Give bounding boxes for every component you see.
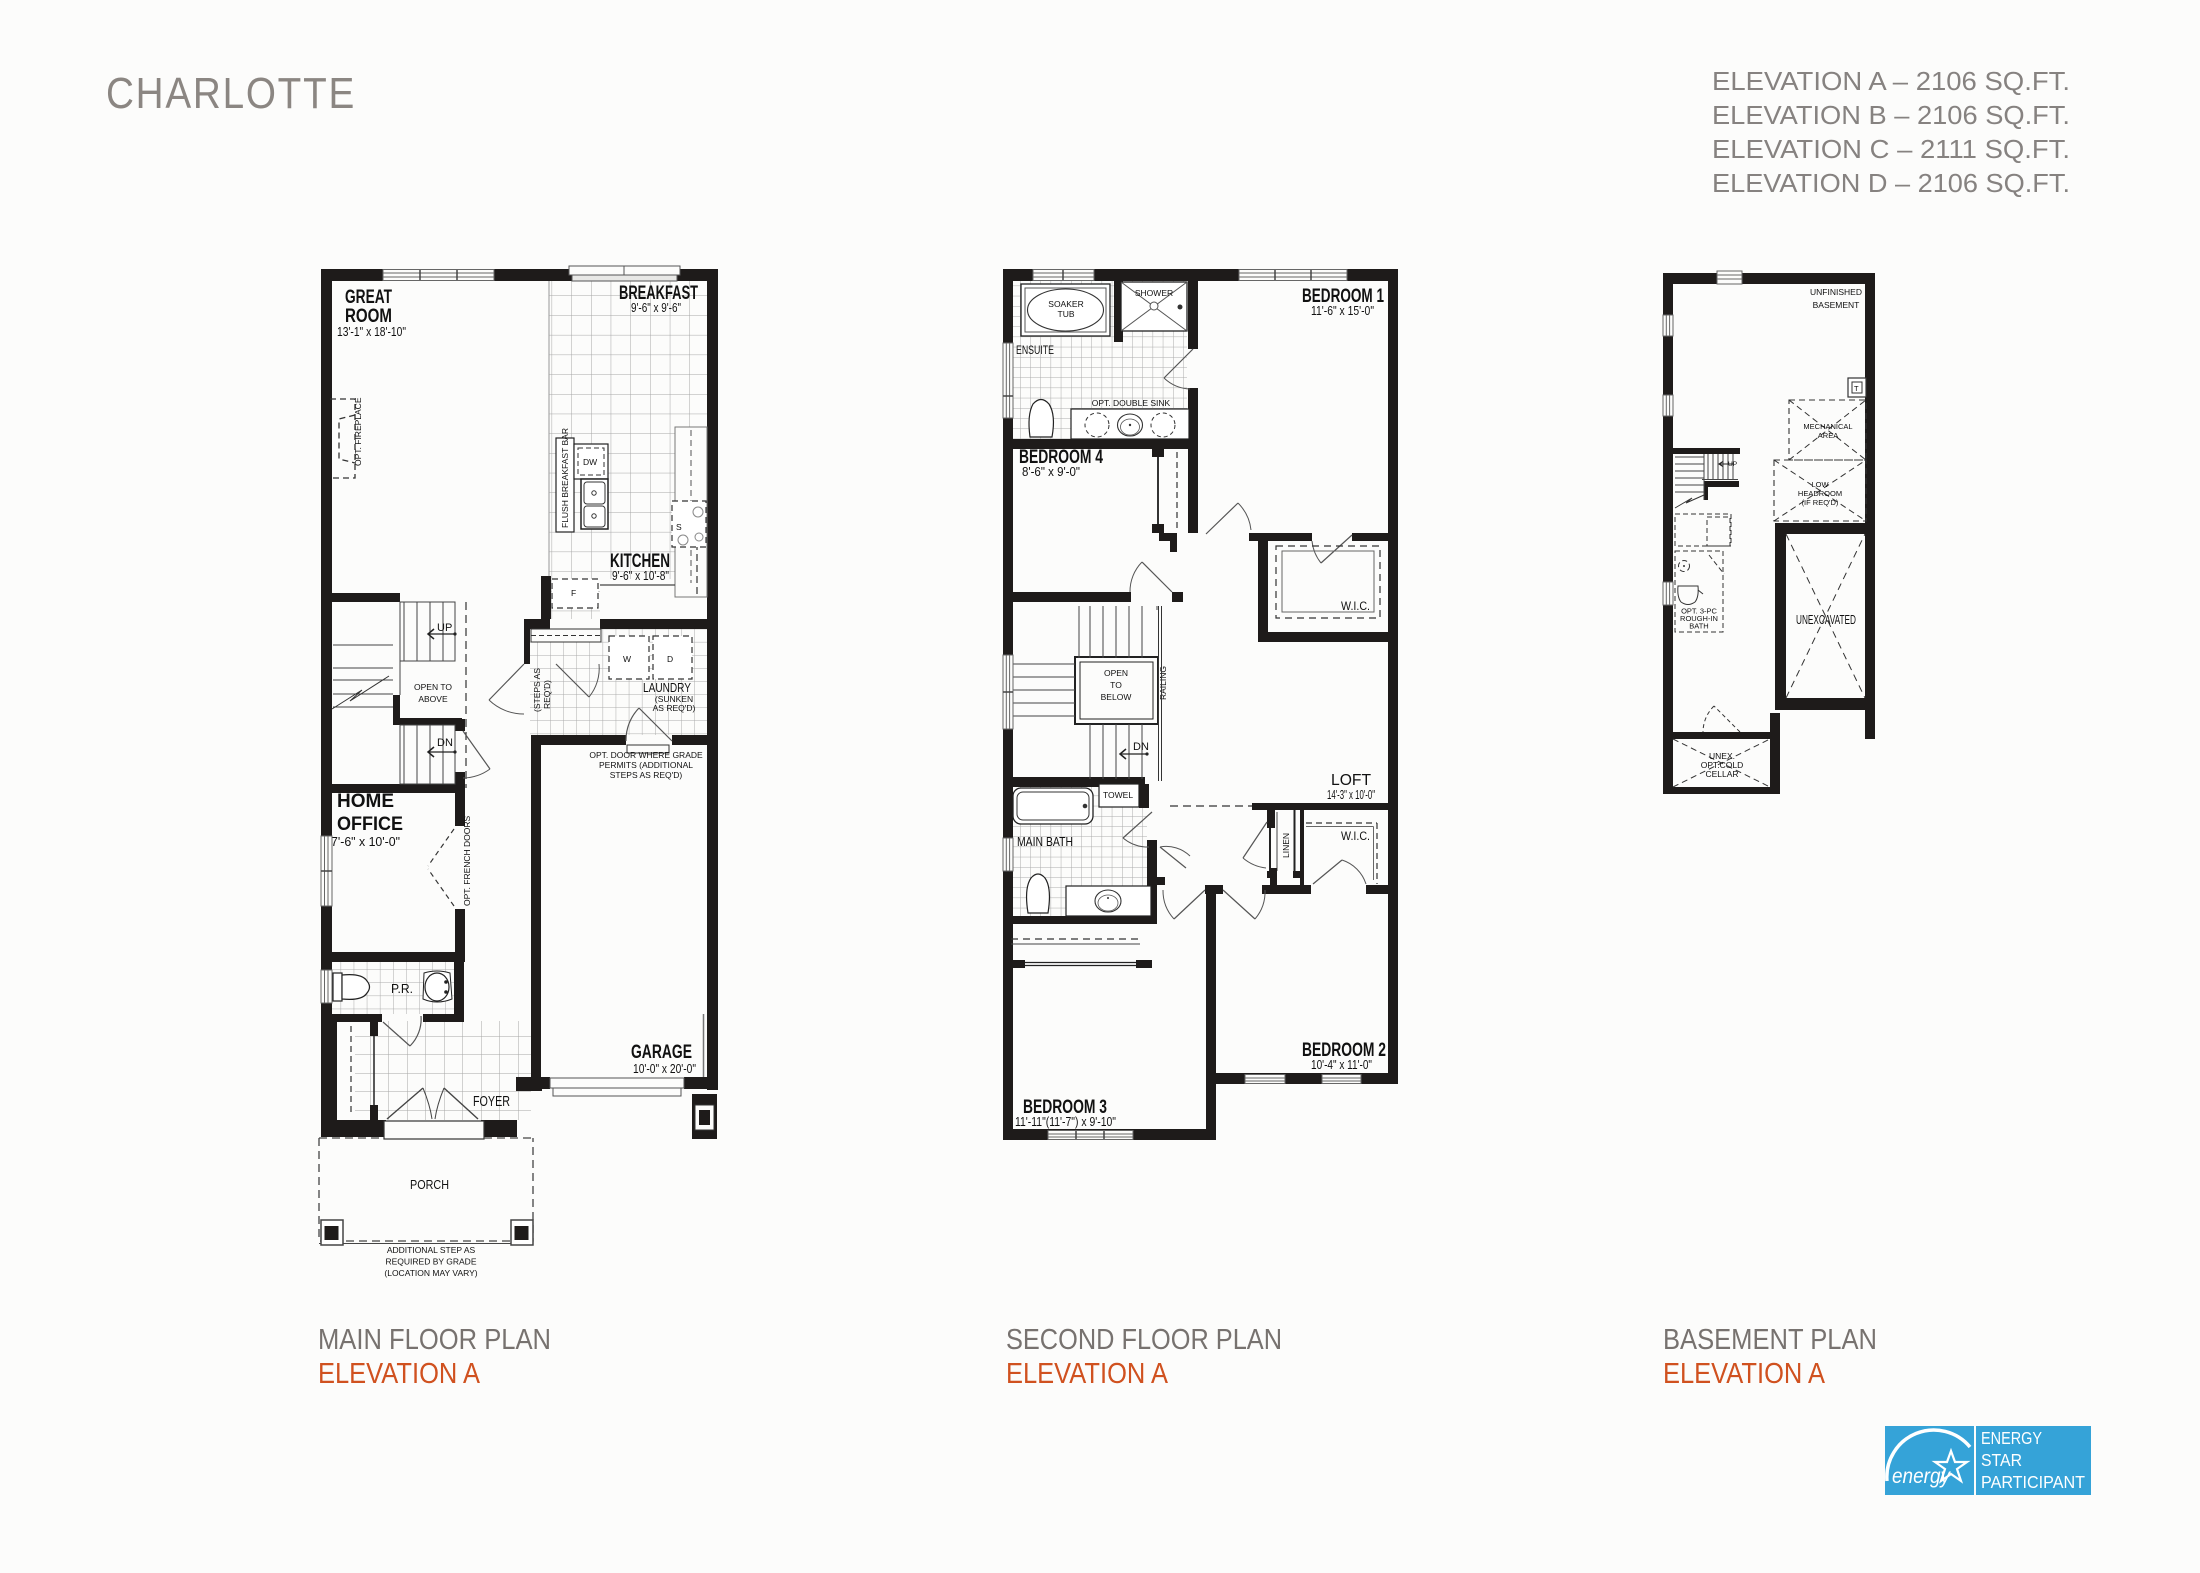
svg-text:SOAKER: SOAKER <box>1048 299 1083 309</box>
svg-text:ENERGY: ENERGY <box>1981 1428 2042 1448</box>
svg-text:8'-6" x 9'-0": 8'-6" x 9'-0" <box>1022 465 1080 479</box>
svg-text:7'-6" x 10'-0": 7'-6" x 10'-0" <box>331 835 400 849</box>
svg-text:LOFT: LOFT <box>1331 772 1371 789</box>
svg-text:ELEVATION A: ELEVATION A <box>1663 1358 1826 1390</box>
svg-text:OPEN: OPEN <box>1104 668 1128 678</box>
svg-text:LOW: LOW <box>1811 480 1829 489</box>
svg-text:CHARLOTTE: CHARLOTTE <box>106 69 356 118</box>
svg-text:10'-4" x 11'-0": 10'-4" x 11'-0" <box>1311 1058 1372 1072</box>
svg-text:OPT. DOOR WHERE GRADE: OPT. DOOR WHERE GRADE <box>589 750 703 760</box>
svg-text:W.I.C.: W.I.C. <box>1341 829 1370 843</box>
svg-text:S: S <box>676 522 682 532</box>
svg-text:T: T <box>1854 384 1859 393</box>
svg-text:LINEN: LINEN <box>1281 833 1291 858</box>
svg-text:F: F <box>571 588 576 598</box>
svg-text:DN: DN <box>437 737 453 749</box>
svg-text:ELEVATION A – 2106 SQ.FT.: ELEVATION A – 2106 SQ.FT. <box>1712 66 2070 96</box>
svg-text:ELEVATION A: ELEVATION A <box>318 1358 481 1390</box>
svg-text:ELEVATION D – 2106 SQ.FT.: ELEVATION D – 2106 SQ.FT. <box>1712 168 2070 198</box>
svg-text:energy: energy <box>1892 1465 1951 1488</box>
svg-text:UP: UP <box>437 622 452 634</box>
svg-text:ROOM: ROOM <box>345 306 392 327</box>
svg-text:TOWEL: TOWEL <box>1103 790 1133 800</box>
svg-text:MAIN BATH: MAIN BATH <box>1017 835 1073 849</box>
svg-text:CELLAR: CELLAR <box>1705 769 1738 779</box>
svg-text:MECHANICAL: MECHANICAL <box>1803 422 1852 431</box>
svg-text:9'-6" x 10'-8": 9'-6" x 10'-8" <box>612 569 669 583</box>
svg-text:LAUNDRY: LAUNDRY <box>643 680 691 695</box>
svg-text:ELEVATION B – 2106 SQ.FT.: ELEVATION B – 2106 SQ.FT. <box>1712 100 2070 130</box>
svg-text:DW: DW <box>583 457 597 467</box>
svg-text:14'-3" x 10'-0": 14'-3" x 10'-0" <box>1327 788 1375 802</box>
svg-text:(IF REQ'D): (IF REQ'D) <box>1802 498 1839 507</box>
svg-text:OPT. FRENCH DOORS: OPT. FRENCH DOORS <box>462 815 472 906</box>
svg-text:BASEMENT: BASEMENT <box>1813 300 1860 310</box>
svg-text:(STEPS AS: (STEPS AS <box>532 668 542 712</box>
svg-text:FLUSH BREAKFAST BAR: FLUSH BREAKFAST BAR <box>560 428 570 528</box>
svg-text:FOYER: FOYER <box>473 1094 510 1110</box>
svg-text:AREA: AREA <box>1818 431 1838 440</box>
svg-text:OFFICE: OFFICE <box>337 814 403 835</box>
svg-text:W: W <box>623 654 631 664</box>
svg-text:ENSUITE: ENSUITE <box>1016 343 1054 357</box>
svg-text:REQUIRED BY GRADE: REQUIRED BY GRADE <box>385 1257 476 1267</box>
svg-text:OPT. FIREPLACE: OPT. FIREPLACE <box>353 397 363 466</box>
svg-text:STEPS AS REQ'D): STEPS AS REQ'D) <box>610 770 683 780</box>
svg-text:D: D <box>667 654 673 664</box>
svg-text:HOME: HOME <box>337 791 394 812</box>
svg-text:PERMITS (ADDITIONAL: PERMITS (ADDITIONAL <box>599 760 693 770</box>
svg-text:OPEN TO: OPEN TO <box>414 682 452 692</box>
svg-text:BATH: BATH <box>1689 622 1708 631</box>
svg-text:OPT. DOUBLE SINK: OPT. DOUBLE SINK <box>1092 398 1171 408</box>
svg-text:UNEXCAVATED: UNEXCAVATED <box>1796 613 1856 627</box>
svg-text:TO: TO <box>1110 680 1122 690</box>
svg-text:HEADROOM: HEADROOM <box>1798 489 1842 498</box>
svg-text:13'-1" x 18'-10": 13'-1" x 18'-10" <box>337 325 406 339</box>
svg-text:BELOW: BELOW <box>1101 692 1132 702</box>
svg-text:GARAGE: GARAGE <box>631 1042 692 1063</box>
svg-text:11'-6" x 15'-0": 11'-6" x 15'-0" <box>1311 304 1374 318</box>
svg-text:W.I.C.: W.I.C. <box>1341 599 1370 613</box>
svg-text:TUB: TUB <box>1058 309 1075 319</box>
svg-text:ELEVATION C – 2111 SQ.FT.: ELEVATION C – 2111 SQ.FT. <box>1712 134 2070 164</box>
svg-text:ELEVATION A: ELEVATION A <box>1006 1358 1169 1390</box>
svg-text:REQ'D): REQ'D) <box>542 680 552 709</box>
svg-text:SHOWER: SHOWER <box>1135 288 1173 298</box>
svg-text:PARTICIPANT: PARTICIPANT <box>1981 1472 2085 1492</box>
svg-text:11'-11"(11'-7") x 9'-10": 11'-11"(11'-7") x 9'-10" <box>1015 1115 1116 1129</box>
svg-text:ADDITIONAL STEP AS: ADDITIONAL STEP AS <box>387 1245 476 1255</box>
svg-text:9'-6" x 9'-6": 9'-6" x 9'-6" <box>631 301 681 315</box>
svg-text:10'-0" x 20'-0": 10'-0" x 20'-0" <box>633 1062 696 1076</box>
svg-text:P.R.: P.R. <box>391 981 413 996</box>
svg-text:AS REQ'D): AS REQ'D) <box>653 703 696 713</box>
svg-text:MAIN FLOOR PLAN: MAIN FLOOR PLAN <box>318 1324 551 1356</box>
svg-text:UNFINISHED: UNFINISHED <box>1810 287 1862 297</box>
svg-text:(LOCATION MAY VARY): (LOCATION MAY VARY) <box>384 1268 477 1278</box>
svg-text:RAILING: RAILING <box>1158 666 1168 700</box>
svg-text:BASEMENT PLAN: BASEMENT PLAN <box>1663 1324 1877 1356</box>
svg-text:DN: DN <box>1133 741 1149 753</box>
svg-text:STAR: STAR <box>1981 1450 2022 1470</box>
svg-text:GREAT: GREAT <box>345 287 392 308</box>
svg-text:ABOVE: ABOVE <box>418 694 448 704</box>
svg-text:SECOND FLOOR PLAN: SECOND FLOOR PLAN <box>1006 1324 1282 1356</box>
svg-text:PORCH: PORCH <box>410 1177 449 1192</box>
